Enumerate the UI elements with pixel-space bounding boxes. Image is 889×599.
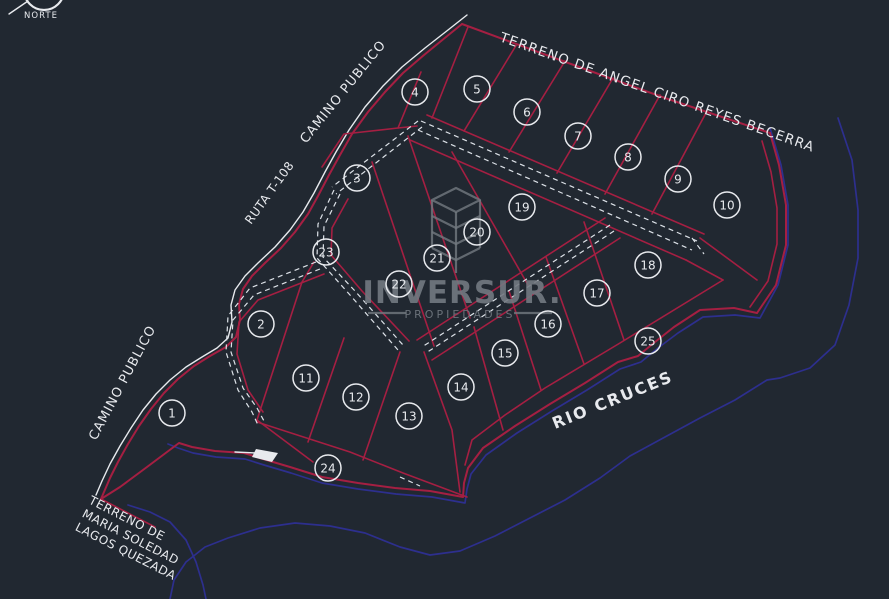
lot-number: 4: [411, 85, 419, 99]
east-boundary-inner: [750, 141, 777, 307]
river-access-marker: [235, 449, 278, 462]
lot-marker-18: 18: [635, 252, 661, 278]
divider-12-13: [363, 352, 400, 460]
lot24-strip-top: [257, 422, 467, 497]
lot2-east-boundary: [257, 262, 314, 420]
lot-number: 14: [453, 380, 468, 394]
plat-map-canvas: NORTE INVERSUR. PROPIEDADES TERRENO DE A…: [0, 0, 889, 599]
w-branch-dash-b: [231, 269, 320, 421]
lot-number: 11: [298, 371, 313, 385]
west-boundary: [101, 24, 462, 499]
marker-shape: [252, 449, 278, 462]
southeast-boundary: [101, 308, 757, 499]
inversur-tagline: PROPIEDADES: [405, 308, 516, 321]
lot-number: 21: [429, 251, 444, 265]
lot-marker-8: 8: [615, 144, 641, 170]
lot-number: 16: [540, 317, 555, 331]
lot-number: 18: [640, 258, 655, 272]
spine-to-lot25: [686, 260, 723, 280]
lot-marker-9: 9: [665, 166, 691, 192]
divider-9-10: [652, 111, 707, 214]
lot-number: 5: [473, 82, 481, 96]
marker-tail: [235, 452, 256, 453]
lot-marker-15: 15: [492, 340, 518, 366]
lot-marker-21: 21: [424, 245, 450, 271]
lot-number: 15: [497, 346, 512, 360]
divider-4-5: [432, 27, 468, 118]
label-rio-cruces: RIO CRUCES: [549, 367, 675, 433]
north-arrow: NORTE: [9, 0, 64, 21]
subdivision-map: NORTE INVERSUR. PROPIEDADES TERRENO DE A…: [0, 0, 889, 599]
lot3-spur: [398, 126, 417, 128]
spine-road-dash-a: [421, 121, 697, 241]
lot-marker-3: 3: [344, 165, 370, 191]
lot-number: 2: [257, 317, 265, 331]
w-ring-flank: [331, 199, 409, 341]
east-boundary-outer: [757, 133, 786, 313]
divider-13-14: [424, 352, 460, 492]
lot-number: 3: [353, 171, 361, 185]
divider-6-7: [509, 61, 565, 152]
lot-number: 19: [514, 200, 529, 214]
lot-number: 22: [391, 277, 406, 291]
inversur-watermark: INVERSUR. PROPIEDADES: [362, 188, 561, 321]
north-arrow-label: NORTE: [24, 11, 58, 21]
lot-number: 23: [318, 245, 333, 259]
lot-marker-2: 2: [248, 311, 274, 337]
lot-number: 6: [523, 105, 531, 119]
north-arrow-circle: [24, 0, 64, 10]
lot-marker-13: 13: [396, 403, 422, 429]
lot-number: 17: [589, 286, 604, 300]
lot-number: 25: [640, 334, 655, 348]
label-camino-publico-sur: CAMINO PUBLICO: [86, 323, 159, 443]
lot-number: 12: [348, 390, 363, 404]
lot-number: 8: [624, 150, 632, 164]
lot-marker-1: 1: [159, 400, 185, 426]
lot-number: 7: [574, 129, 582, 143]
lot-marker-16: 16: [535, 311, 561, 337]
lot-number: 1: [168, 406, 176, 420]
w-ring-dash-a: [317, 190, 398, 350]
lot-number: 9: [674, 172, 682, 186]
lot-marker-14: 14: [448, 374, 474, 400]
lot3-boundary: [322, 72, 421, 167]
lot-marker-20: 20: [464, 219, 490, 245]
lot-marker-4: 4: [402, 79, 428, 105]
lot-marker-10: 10: [714, 192, 740, 218]
lot-marker-6: 6: [514, 99, 540, 125]
lot10-south-line: [700, 238, 757, 280]
lot-marker-17: 17: [584, 280, 610, 306]
lot-marker-5: 5: [464, 76, 490, 102]
lot-marker-11: 11: [293, 365, 319, 391]
lot-marker-19: 19: [509, 194, 535, 220]
lot-number: 10: [719, 198, 734, 212]
lot-number: 13: [401, 409, 416, 423]
lot-number: 24: [320, 461, 335, 475]
lot-marker-12: 12: [343, 384, 369, 410]
lot-marker-7: 7: [565, 123, 591, 149]
w-branch-dash-a: [226, 262, 316, 425]
w-branch-flank: [237, 274, 324, 412]
lot-number: 20: [469, 225, 484, 239]
divider-11-12: [308, 338, 344, 442]
label-ruta-t-108: RUTA T-108: [242, 159, 297, 227]
